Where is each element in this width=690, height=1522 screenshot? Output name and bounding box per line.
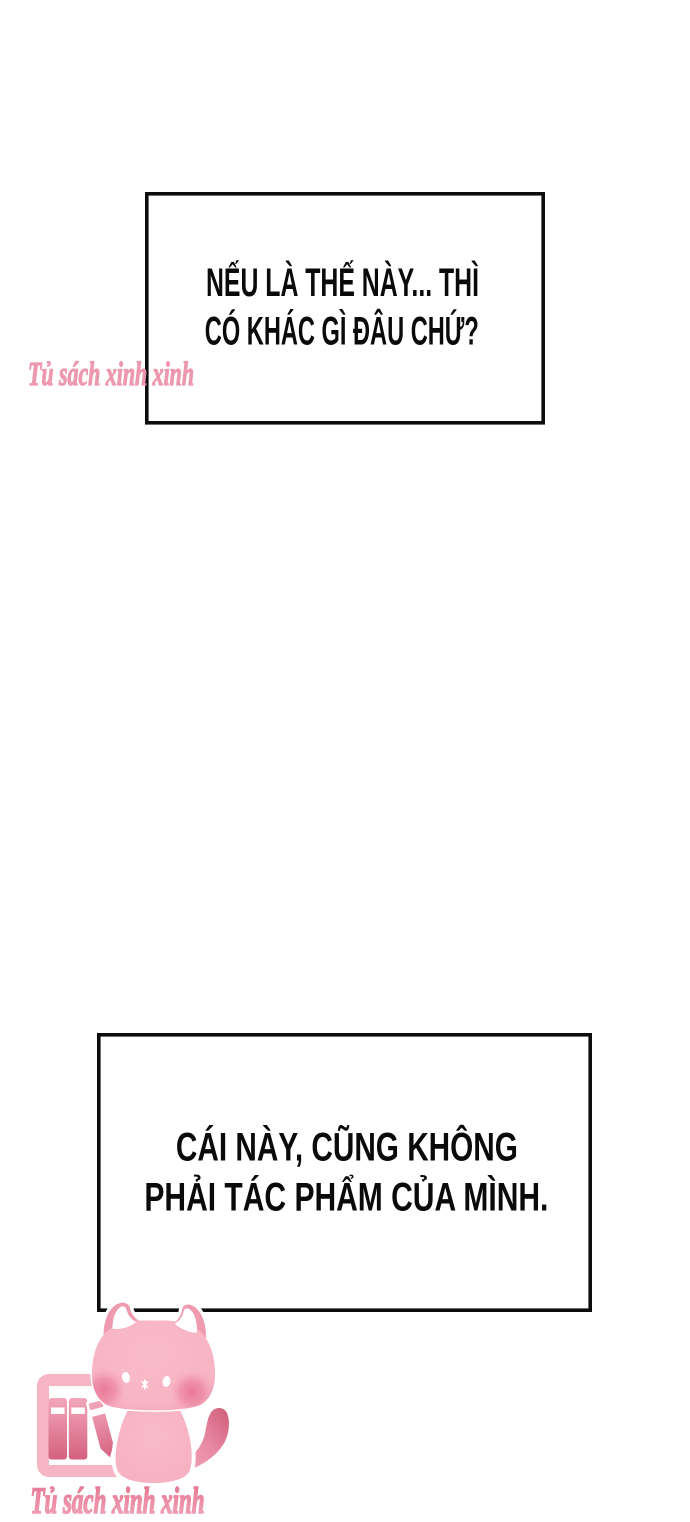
svg-text:NẾU LÀ THẾ NÀY... THÌ: NẾU LÀ THẾ NÀY... THÌ — [206, 261, 479, 305]
svg-text:CÁI NÀY, CŨNG KHÔNG: CÁI NÀY, CŨNG KHÔNG — [176, 1125, 518, 1170]
svg-text:CÓ KHÁC GÌ ĐÂU CHỨ?: CÓ KHÁC GÌ ĐÂU CHỨ? — [205, 310, 479, 354]
svg-text:PHẢI TÁC PHẨM CỦA MÌNH.: PHẢI TÁC PHẨM CỦA MÌNH. — [144, 1174, 548, 1219]
svg-text:Tủ sách xinh xinh: Tủ sách xinh xinh — [31, 1481, 205, 1522]
svg-text:Tủ sách xinh xinh: Tủ sách xinh xinh — [28, 356, 194, 393]
